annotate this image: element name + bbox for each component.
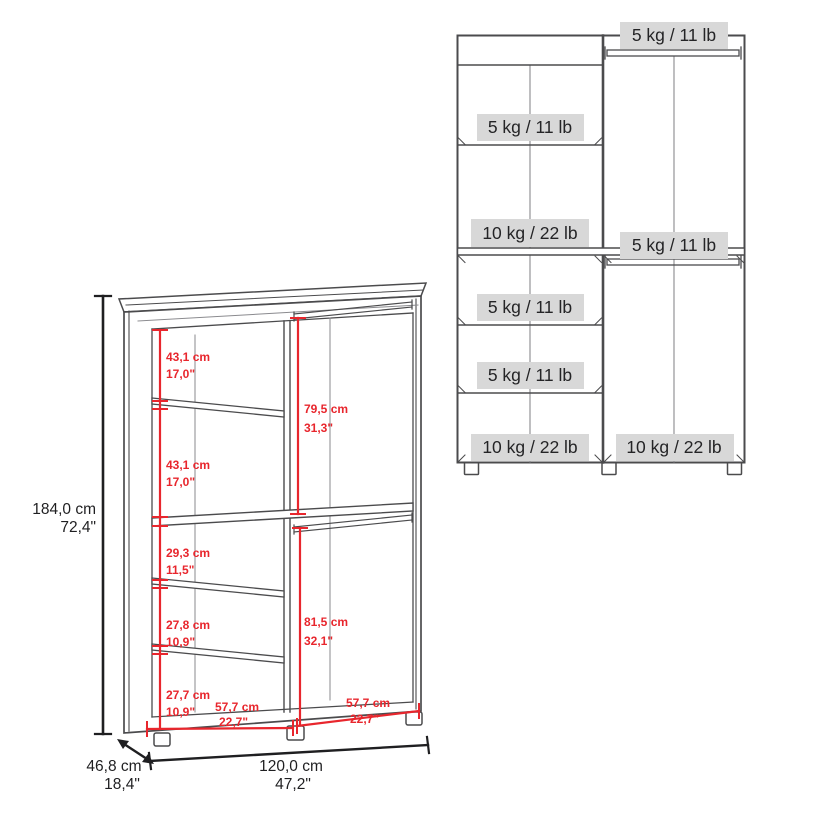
load-capacity-diagram: 5 kg / 11 lb 5 kg / 11 lb 10 kg / 22 lb … — [458, 22, 745, 475]
cabinet-feet — [465, 463, 742, 475]
capacity-badge-left-bottom: 10 kg / 22 lb — [471, 434, 589, 461]
dim-value-inch: 32,1" — [304, 634, 333, 648]
dim-value-inch: 11,5" — [166, 563, 194, 577]
capacity-badge-left-shelf-2: 10 kg / 22 lb — [471, 219, 589, 247]
dim-value-cm: 43,1 cm — [166, 350, 210, 364]
depth-inch: 18,4" — [104, 776, 140, 793]
height-inch: 72,4" — [60, 519, 96, 536]
badge-label: 10 kg / 22 lb — [482, 223, 577, 243]
capacity-badge-top-rod: 5 kg / 11 lb — [620, 22, 728, 49]
dim-value-cm: 79,5 cm — [304, 402, 348, 416]
dimension-diagram: 43,1 cm 17,0" 43,1 cm 17,0" 79,5 cm 31,3… — [32, 283, 429, 793]
width-cm: 120,0 cm — [259, 758, 323, 775]
badge-label: 5 kg / 11 lb — [488, 365, 572, 385]
capacity-badge-right-bottom: 10 kg / 22 lb — [616, 434, 734, 461]
badge-label: 10 kg / 22 lb — [482, 437, 577, 457]
dim-value-inch: 17,0" — [166, 367, 195, 381]
dim-value-inch: 17,0" — [166, 475, 195, 489]
capacity-badge-left-shelf-1: 5 kg / 11 lb — [477, 114, 584, 141]
height-dimension — [95, 296, 111, 734]
dim-value-inch: 22,7" — [219, 715, 248, 729]
dim-value-cm: 29,3 cm — [166, 546, 210, 560]
height-cm: 184,0 cm — [32, 501, 96, 518]
capacity-badge-left-shelf-3: 5 kg / 11 lb — [477, 294, 584, 321]
badge-label: 10 kg / 22 lb — [626, 437, 721, 457]
badge-label: 5 kg / 11 lb — [632, 235, 716, 255]
width-inch: 47,2" — [275, 776, 311, 793]
badge-label: 5 kg / 11 lb — [488, 297, 572, 317]
dim-value-cm: 57,7 cm — [346, 696, 390, 710]
capacity-badge-mid-rod: 5 kg / 11 lb — [620, 232, 728, 259]
dim-value-cm: 57,7 cm — [215, 700, 259, 714]
dim-value-inch: 22,7" — [350, 712, 379, 726]
badge-label: 5 kg / 11 lb — [632, 25, 716, 45]
depth-cm: 46,8 cm — [86, 758, 141, 775]
badge-label: 5 kg / 11 lb — [488, 117, 572, 137]
dim-value-inch: 10,9" — [166, 635, 195, 649]
dim-value-cm: 27,7 cm — [166, 688, 210, 702]
dim-value-cm: 81,5 cm — [304, 615, 348, 629]
dim-value-inch: 31,3" — [304, 421, 333, 435]
furniture-diagram-canvas: 5 kg / 11 lb 5 kg / 11 lb 10 kg / 22 lb … — [0, 0, 840, 840]
dim-value-cm: 27,8 cm — [166, 618, 210, 632]
dim-value-cm: 43,1 cm — [166, 458, 210, 472]
capacity-badge-left-shelf-4: 5 kg / 11 lb — [477, 362, 584, 389]
dim-value-inch: 10,9" — [166, 705, 195, 719]
